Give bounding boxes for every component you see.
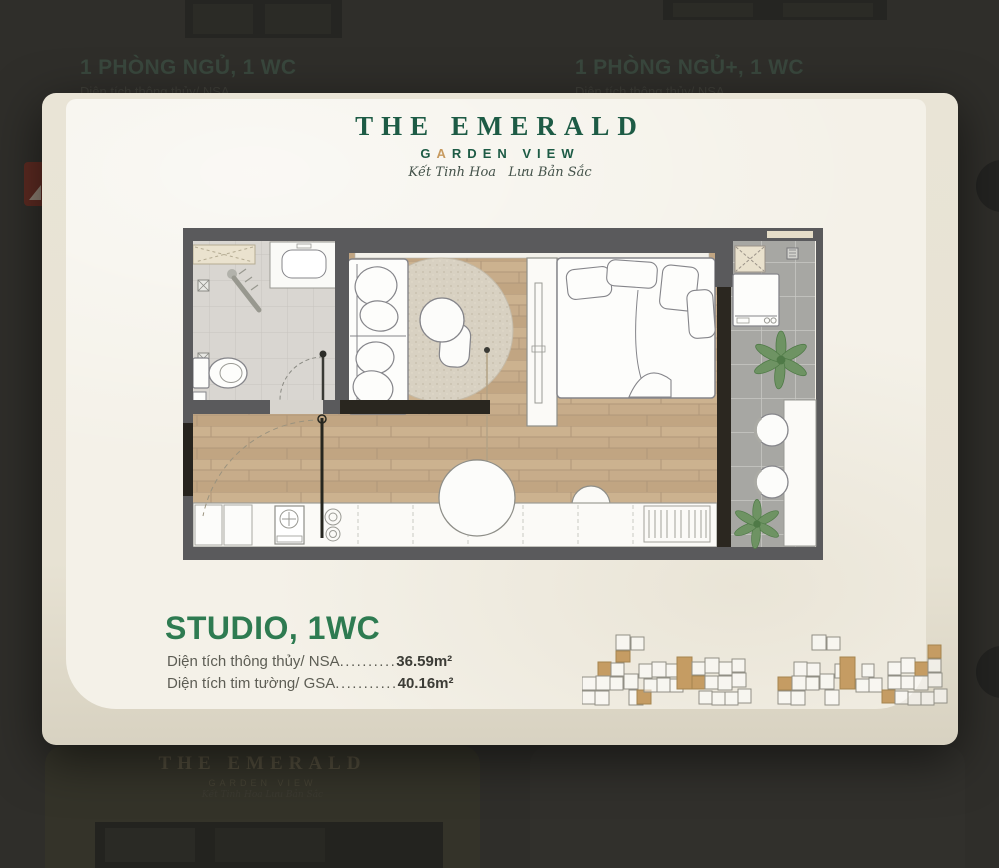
brand-logo-title: THE EMERALD bbox=[42, 111, 958, 142]
background-floorplan-thumb-bottom bbox=[95, 822, 443, 868]
nsa-value: 36.59m² bbox=[396, 653, 452, 670]
thumb-detail bbox=[215, 828, 325, 862]
badge-triangle-icon bbox=[29, 185, 41, 200]
thumb-detail bbox=[105, 828, 195, 862]
background-card-bottom-right[interactable] bbox=[530, 746, 965, 868]
hot-badge-icon bbox=[24, 162, 43, 206]
floor-drain-icon bbox=[787, 248, 798, 259]
balcony-chair bbox=[755, 414, 788, 446]
tv-console bbox=[527, 258, 557, 426]
keyplan-diagram bbox=[582, 633, 954, 722]
background-floorplan-thumb-left bbox=[185, 0, 342, 38]
carousel-next-button-top[interactable] bbox=[976, 160, 999, 212]
background-floorplan-thumb-right bbox=[663, 0, 887, 20]
area-row-gsa: Diện tích tim tường/ GSA...........40.16… bbox=[167, 675, 454, 692]
balcony-chair bbox=[755, 466, 788, 498]
area-block: Diện tích thông thủy/ NSA..........36.59… bbox=[167, 653, 454, 697]
gold-letter-a: A bbox=[437, 146, 452, 161]
brand-logo-subtitle: GARDEN VIEW bbox=[42, 146, 958, 161]
balcony-bar-table bbox=[784, 400, 816, 546]
unit-title: STUDIO, 1WC bbox=[165, 610, 380, 647]
sofa bbox=[348, 259, 408, 414]
brand-logo-tagline: Kết Tinh Hoa Lưu Bản Sắc bbox=[42, 165, 958, 180]
stove bbox=[275, 506, 304, 544]
background-logo-tagline: Kết Tinh Hoa Lưu Bản Sắc bbox=[45, 790, 480, 800]
ac-pad bbox=[735, 246, 765, 272]
background-logo-subtitle: GARDEN VIEW bbox=[45, 778, 480, 788]
carousel-next-button-bottom[interactable] bbox=[976, 646, 999, 698]
keyplan-cluster-1 bbox=[582, 635, 751, 705]
floor-plan-image bbox=[183, 228, 823, 560]
background-logo-title: THE EMERALD bbox=[45, 753, 480, 775]
background-card-title-left[interactable]: 1 PHÒNG NGỦ, 1 WC bbox=[80, 56, 296, 80]
washing-machine bbox=[733, 274, 779, 326]
thumb-detail bbox=[265, 4, 331, 34]
thumb-detail bbox=[193, 4, 253, 34]
sink bbox=[270, 242, 338, 288]
toilet bbox=[193, 358, 247, 388]
gsa-value: 40.16m² bbox=[398, 675, 454, 692]
brand-logo: THE EMERALD GARDEN VIEW Kết Tinh Hoa Lưu… bbox=[42, 111, 958, 180]
shower-bench bbox=[193, 245, 255, 264]
screen: 1 PHÒNG NGỦ, 1 WC 1 PHÒNG NGỦ+, 1 WC Diệ… bbox=[0, 0, 999, 868]
keyplan-cluster-2 bbox=[778, 635, 947, 705]
bed bbox=[557, 258, 716, 398]
thumb-detail bbox=[783, 3, 873, 17]
dining-table bbox=[439, 460, 515, 536]
background-card-title-right[interactable]: 1 PHÒNG NGỦ+, 1 WC bbox=[575, 56, 804, 80]
thumb-detail bbox=[673, 3, 753, 17]
floorplan-modal-card: THE EMERALD GARDEN VIEW Kết Tinh Hoa Lưu… bbox=[42, 93, 958, 745]
background-card-bottom-left[interactable]: THE EMERALD GARDEN VIEW Kết Tinh Hoa Lưu… bbox=[45, 746, 480, 868]
area-row-nsa: Diện tích thông thủy/ NSA..........36.59… bbox=[167, 653, 454, 670]
partition-pivot bbox=[484, 347, 490, 353]
